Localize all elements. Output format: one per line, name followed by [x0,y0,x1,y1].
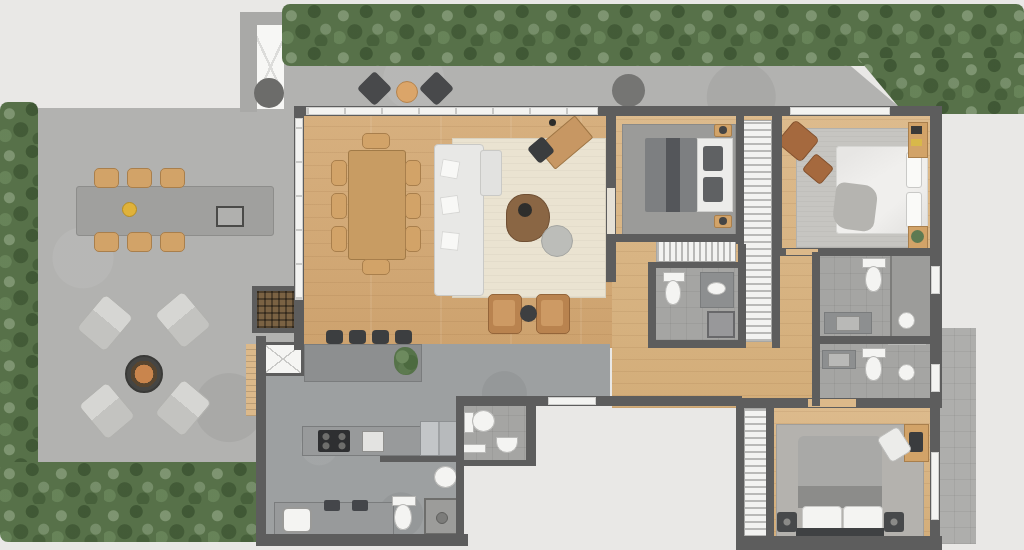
bathroom3-wall-basin [898,364,915,381]
floor-plan [0,0,1024,550]
nightstand-lamp [719,126,727,134]
round-planter [612,74,645,107]
service-toilet-bowl [394,504,412,530]
hall-south-window [548,397,596,405]
outdoor-dining-table [76,186,274,236]
kitchen-sink [324,500,340,511]
wall-rightbaths-divider [812,336,938,344]
wall-bed1-bottom [612,234,744,242]
door-opening [607,188,615,234]
sofa-pillow [440,231,460,251]
bathroom2-wall-basin [898,312,915,329]
dining-chair [405,160,421,186]
dining-chair [362,133,390,149]
wall-kitchen-bottom [256,534,468,546]
bar-plant [394,347,418,375]
dining-chair [331,193,347,219]
powder-toilet-bowl [472,410,495,432]
dining-chair [331,226,347,252]
dining-chair [331,160,347,186]
serving-bowl [122,202,137,217]
bathroom3-basin [828,353,850,367]
bedroom1-pillow [703,146,723,171]
dining-table [348,150,406,260]
outdoor-chair [160,232,185,252]
bathroom1-toilet-bowl [665,280,681,305]
wall-bathroom1-bottom [648,340,744,348]
wall-bed2-left [736,406,744,546]
bedroom2-nightstand [777,512,797,532]
shelf-plant [911,230,924,243]
wall-closet2-right [766,406,774,538]
shelf-item-dark [911,126,922,134]
hedge-bottom-left [0,462,268,542]
side-patio-floor [938,328,976,544]
bar-stool [349,330,366,344]
sofa-chaise [480,150,502,196]
pouf [541,225,573,257]
walkway-floor [250,62,905,112]
bedroom1-pillow [703,177,723,202]
outdoor-round-table [396,81,418,103]
bedroom1-bed-runner [666,138,680,212]
wall-master-left [772,106,782,256]
hedge-top [282,4,1024,66]
washer [282,507,312,533]
living-left-glazing [295,118,303,300]
bedroom2-bed-blanket [798,486,882,508]
kitchen-sink [352,500,368,511]
bar-stool [326,330,343,344]
armchair-seat [541,300,563,326]
wall-hall-south [458,396,742,406]
outdoor-chair [160,168,185,188]
bathroom3-toilet-bowl [865,356,882,381]
wall-rightbaths-left [812,252,820,406]
wall-east-upper [930,106,942,408]
floor-lamp [549,119,556,126]
shower-drain [436,512,448,524]
bedroom1-dresser [656,241,736,262]
bar-stool [372,330,389,344]
nightstand-lamp [719,217,727,225]
wall-closet1-far [772,256,780,348]
wall-living-kitchen-stub [294,306,304,348]
bedroom1-wardrobe [743,120,772,342]
powder-shelf [462,444,486,453]
bedroom2-wardrobe [744,408,768,538]
wall-closet1-right [738,244,746,348]
oven [362,431,384,452]
bathroom2-window [931,266,940,294]
wall-bathroom1-top [648,262,744,268]
bedroom2-nightstand [884,512,904,532]
dining-chair [405,226,421,252]
outdoor-chair [127,232,152,252]
wall-powder-right [526,396,536,466]
outdoor-chair [94,232,119,252]
tabletop-grill [216,206,244,227]
bathroom2-toilet-bowl [865,266,882,292]
armchair-seat [493,300,515,326]
wall-bathroom1-left [648,262,656,346]
shelf-item-yellow [911,139,922,146]
master-window [790,107,890,115]
outdoor-chair [127,168,152,188]
refrigerator [420,421,458,456]
wall-bed2-bottom [736,536,942,550]
bedroom2-bed-duvet [798,436,882,486]
sofa-pillow [440,159,461,180]
round-side-table [520,305,537,322]
dining-chair [362,259,390,275]
master-pillow [906,192,922,228]
bedroom2-window [931,452,939,520]
planter-tree [254,78,284,108]
wall-powder-left [456,396,464,544]
sofa-pillow [440,195,460,215]
hedge-left [0,102,38,484]
bathroom2-basin [836,316,860,331]
wall-closet1-left [736,112,744,244]
master-throw-blanket [831,182,878,233]
bathroom3-window [931,364,940,392]
outdoor-chair [94,168,119,188]
coffee-table-decor [518,203,532,217]
bathroom1-shower [707,311,735,338]
bar-stool [395,330,412,344]
dining-chair [405,193,421,219]
service-basin [434,466,457,488]
wall-powder-bottom [456,460,536,466]
fire-pit [125,355,163,393]
living-top-glazing [306,107,598,115]
wall-kitchen-left [256,336,266,544]
cooktop [318,430,350,452]
bathroom1-sink [707,282,726,295]
wall-servicebath-top [380,456,460,462]
